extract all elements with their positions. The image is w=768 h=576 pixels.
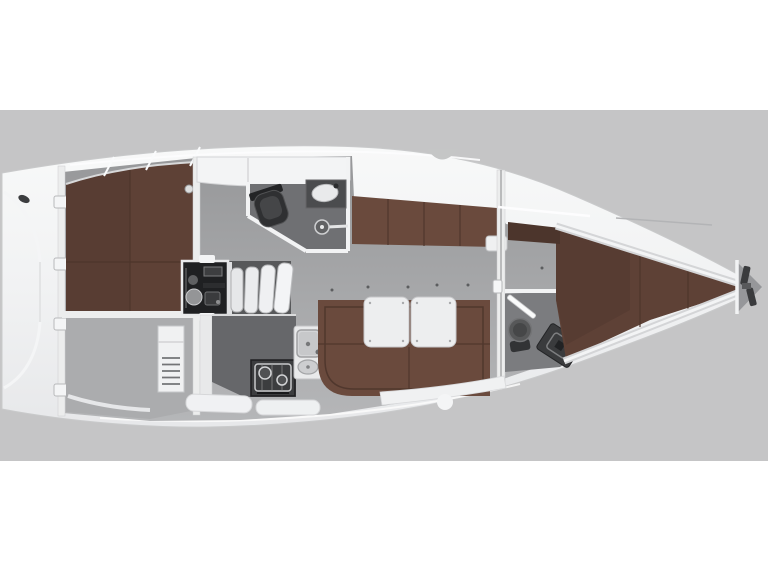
companionway-step-1 <box>231 268 243 312</box>
deck-notch-bottom <box>437 394 453 410</box>
reading-light-icon <box>185 185 193 193</box>
stove-icon <box>251 360 295 396</box>
storage-cabinet <box>158 326 184 392</box>
floorplan-svg <box>0 0 768 576</box>
storage-dividing-wall <box>62 311 200 318</box>
shower-mixer-arm <box>327 226 348 227</box>
deck-piece-2 <box>256 400 320 415</box>
engine-mount-top <box>199 255 215 263</box>
saloon-table-leaf-right <box>411 297 456 347</box>
companionway-step-3 <box>258 265 275 314</box>
aft-head-faucet-icon <box>334 184 339 189</box>
forward-toilet-icon <box>509 319 532 353</box>
shower-mixer-dot <box>320 225 324 229</box>
saloon-table-leaf-left <box>364 297 409 347</box>
deck-piece-1 <box>186 394 253 413</box>
galley-side-panel <box>200 315 212 401</box>
boat-floorplan <box>0 0 768 576</box>
transom-hinge-2 <box>54 258 68 270</box>
windlass-base <box>742 283 751 289</box>
aft-berth-shade <box>66 169 130 313</box>
companionway <box>182 255 294 321</box>
transom-hinge-3 <box>54 318 68 330</box>
sink-drain-icon <box>306 342 310 346</box>
companionway-step-2 <box>244 267 259 313</box>
transom-hinge-1 <box>54 196 68 208</box>
bulkhead-latch <box>493 280 502 293</box>
transom-hinge-4 <box>54 384 68 396</box>
